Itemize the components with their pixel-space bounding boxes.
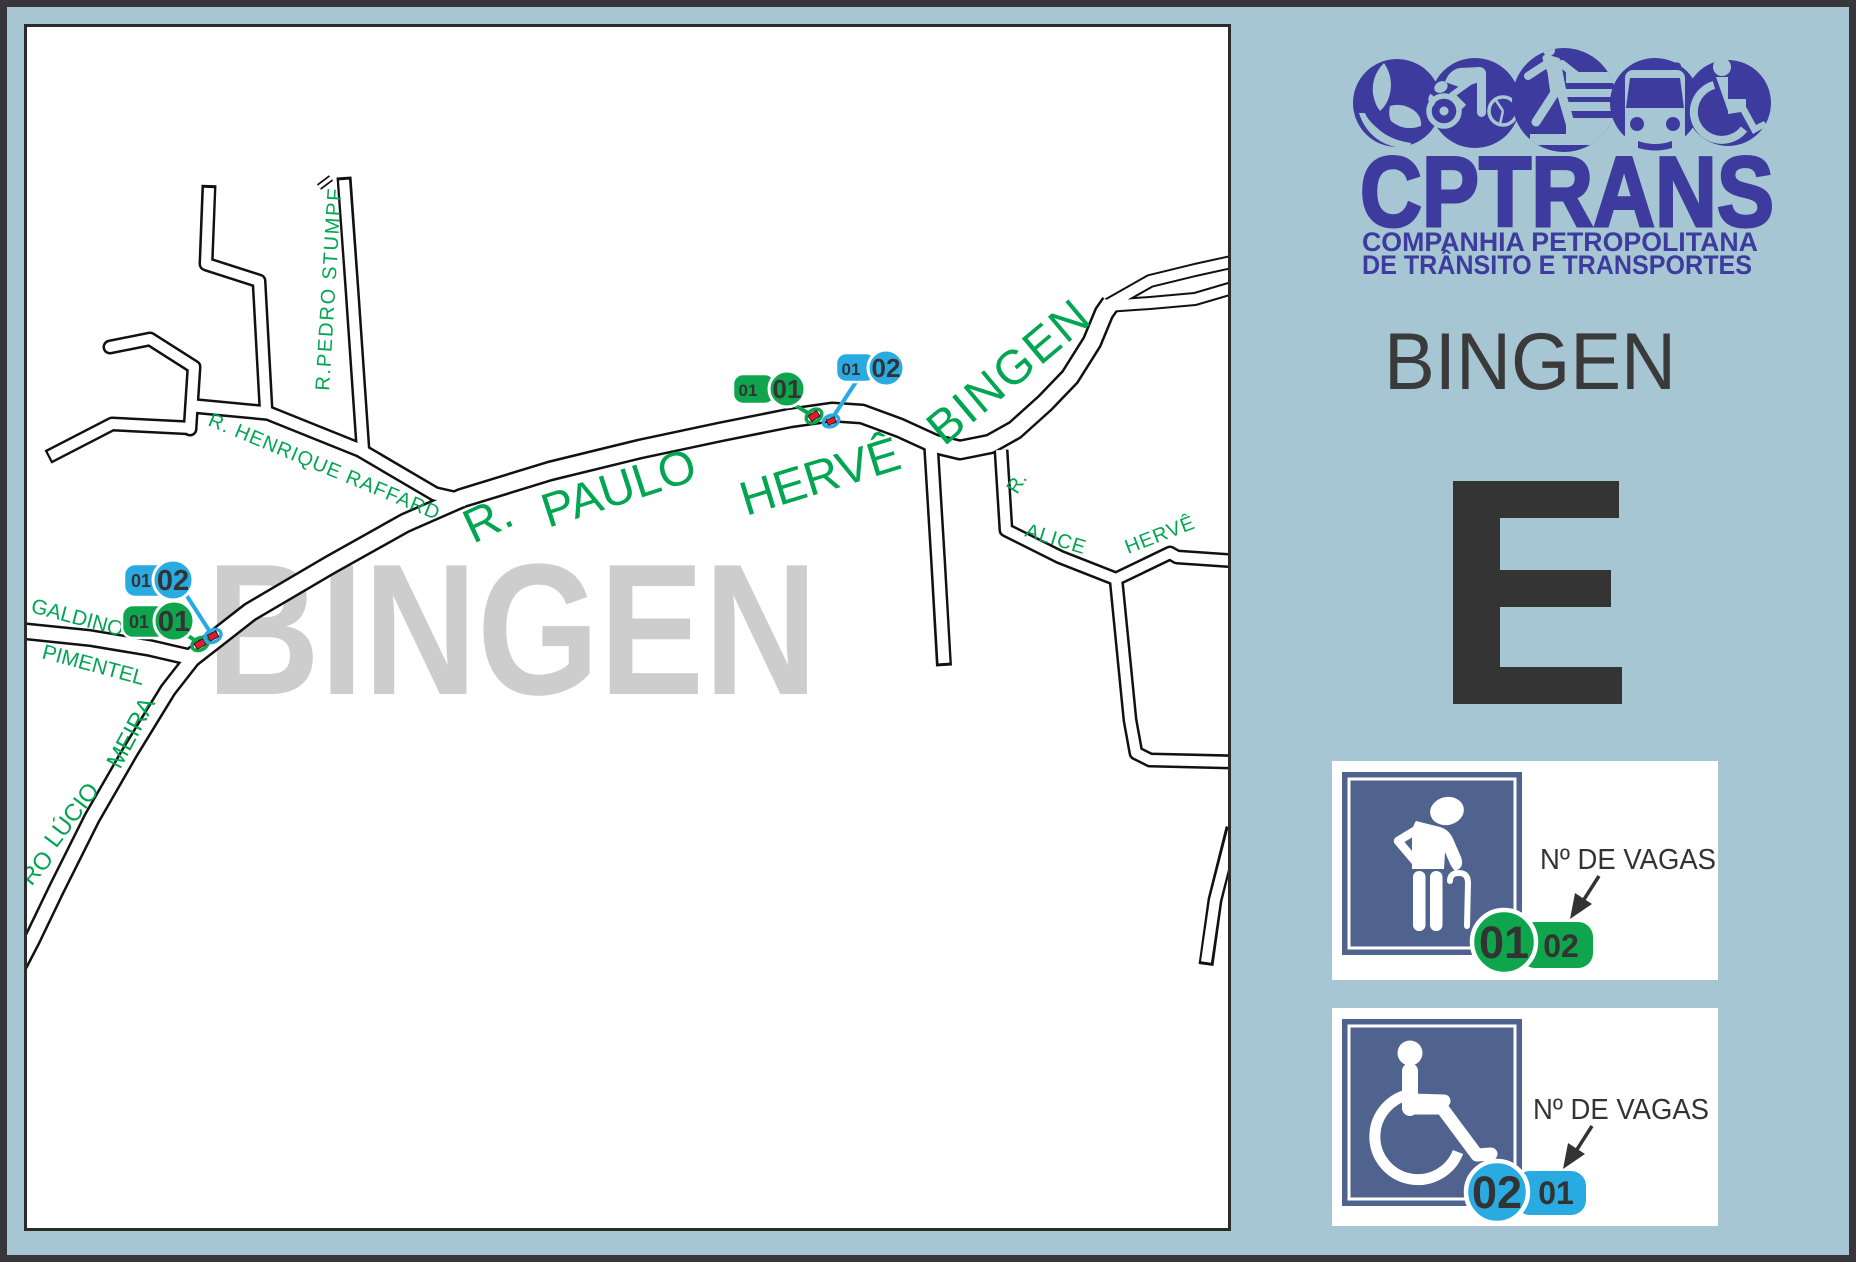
svg-text:02: 02 <box>872 353 901 383</box>
svg-text:01: 01 <box>131 571 151 591</box>
svg-text:01: 01 <box>1538 1175 1574 1211</box>
svg-text:01: 01 <box>739 381 758 400</box>
svg-text:Nº DE VAGAS: Nº DE VAGAS <box>1533 1094 1709 1126</box>
svg-text:Nº DE VAGAS: Nº DE VAGAS <box>1540 844 1716 876</box>
svg-text:01: 01 <box>158 606 190 638</box>
svg-text:01: 01 <box>842 360 861 379</box>
svg-text:DE TRÂNSITO E TRANSPORTES: DE TRÂNSITO E TRANSPORTES <box>1362 249 1752 280</box>
svg-text:BINGEN: BINGEN <box>1384 317 1676 407</box>
svg-text:01: 01 <box>773 374 802 404</box>
svg-text:01: 01 <box>1479 917 1529 968</box>
svg-text:BINGEN: BINGEN <box>207 525 818 734</box>
svg-text:02: 02 <box>1472 1167 1522 1218</box>
svg-text:02: 02 <box>157 565 189 597</box>
svg-text:02: 02 <box>1543 928 1579 964</box>
svg-text:01: 01 <box>129 612 149 632</box>
